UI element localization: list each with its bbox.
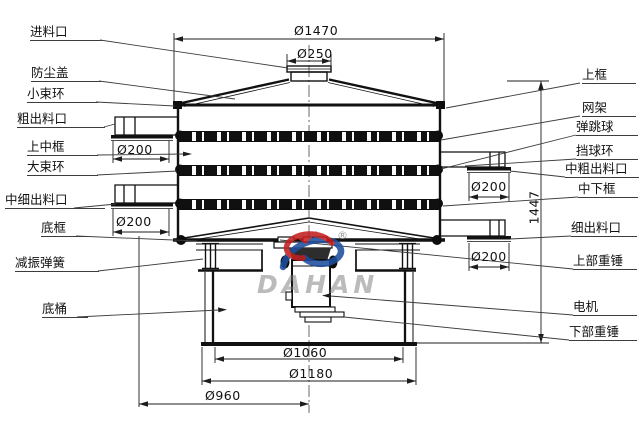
screen-deck-band-2: [179, 165, 439, 176]
label-upper-middle-frame: 上中框: [27, 140, 98, 156]
label-middle-lower-frame: 中下框: [578, 182, 638, 198]
label-large-clamp-ring: 大束环: [27, 160, 98, 176]
dim-inlet-diameter: Ø250: [297, 46, 333, 61]
label-medium-fine-outlet: 中细出料口: [5, 193, 105, 209]
label-upper-frame: 上框: [582, 68, 636, 84]
brand-watermark-text: DAHAN: [257, 270, 378, 299]
label-coarse-outlet: 粗出料口: [17, 112, 105, 128]
dim-outlet-right-upper: Ø200: [471, 179, 507, 194]
label-bottom-frame: 底框: [41, 221, 87, 237]
dim-total-height: 1447: [527, 185, 542, 231]
label-motor: 电机: [573, 300, 637, 316]
dim-outlet-right-lower: Ø200: [471, 249, 507, 264]
dim-base-outer-diameter: Ø1180: [289, 366, 333, 381]
registered-trademark-symbol: ®: [337, 229, 348, 242]
dim-outlet-left-upper: Ø200: [117, 142, 153, 157]
label-damping-spring: 减振弹簧: [15, 256, 99, 272]
dim-base-inner-diameter: Ø1060: [283, 345, 327, 360]
label-dust-cover: 防尘盖: [31, 66, 101, 82]
dim-outlet-left-lower: Ø200: [116, 214, 152, 229]
label-feed-inlet: 进料口: [30, 25, 102, 41]
label-bottom-barrel: 底桶: [42, 302, 88, 318]
screen-deck-band-3: [179, 199, 439, 210]
label-small-clamp-ring: 小束环: [27, 87, 98, 103]
technical-drawing-canvas: DAHAN ® 进料口 防尘盖 小束环 粗出料口 上中框 大束环 中细出料口 底…: [0, 0, 640, 437]
label-mesh-frame: 网架: [582, 101, 636, 117]
label-upper-weight: 上部重锤: [573, 254, 637, 270]
dim-top-diameter: Ø1470: [294, 23, 338, 38]
label-bouncing-ball: 弹跳球: [576, 120, 638, 136]
screen-deck-band-1: [179, 131, 439, 142]
label-lower-weight: 下部重锤: [569, 325, 637, 341]
label-medium-coarse-outlet: 中粗出料口: [565, 162, 639, 178]
label-ball-stop-ring: 挡球环: [576, 144, 638, 160]
dim-spring-circle-diameter: Ø960: [205, 388, 241, 403]
label-fine-outlet: 细出料口: [571, 221, 637, 237]
